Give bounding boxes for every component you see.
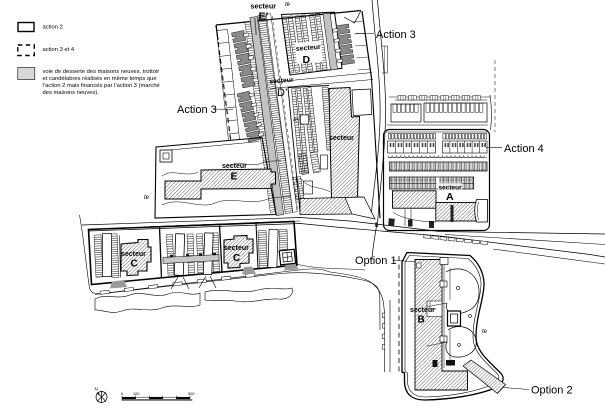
svg-text:C: C [233,253,240,264]
svg-text:D’: D’ [277,87,287,99]
svg-text:D: D [303,54,311,66]
svg-text:Option 2: Option 2 [531,385,573,397]
svg-text:B: B [418,315,425,326]
svg-text:secteur: secteur [121,251,146,258]
svg-text:A: A [446,191,454,203]
svg-text:Option 1: Option 1 [355,255,397,267]
svg-text:secteur: secteur [222,163,247,170]
svg-text:C: C [131,259,138,270]
svg-text:Action 3: Action 3 [376,29,416,41]
svg-text:secteur: secteur [251,2,277,11]
svg-text:secteur: secteur [410,307,435,314]
svg-text:te: te [144,195,150,201]
svg-text:secteur: secteur [224,245,249,252]
svg-text:N: N [95,387,98,392]
svg-text:secteur: secteur [329,135,354,142]
svg-text:action 2: action 2 [43,25,63,31]
svg-text:E’: E’ [259,11,269,23]
svg-text:te: te [482,329,488,335]
svg-text:E: E [231,171,238,183]
svg-text:action 3 et 4: action 3 et 4 [43,47,75,53]
svg-text:te: te [285,2,291,8]
svg-text:0: 0 [121,392,123,396]
svg-text:Action 3: Action 3 [177,104,217,116]
svg-text:Action 4: Action 4 [504,143,544,155]
svg-text:500: 500 [188,392,194,396]
svg-text:100: 100 [133,392,139,396]
